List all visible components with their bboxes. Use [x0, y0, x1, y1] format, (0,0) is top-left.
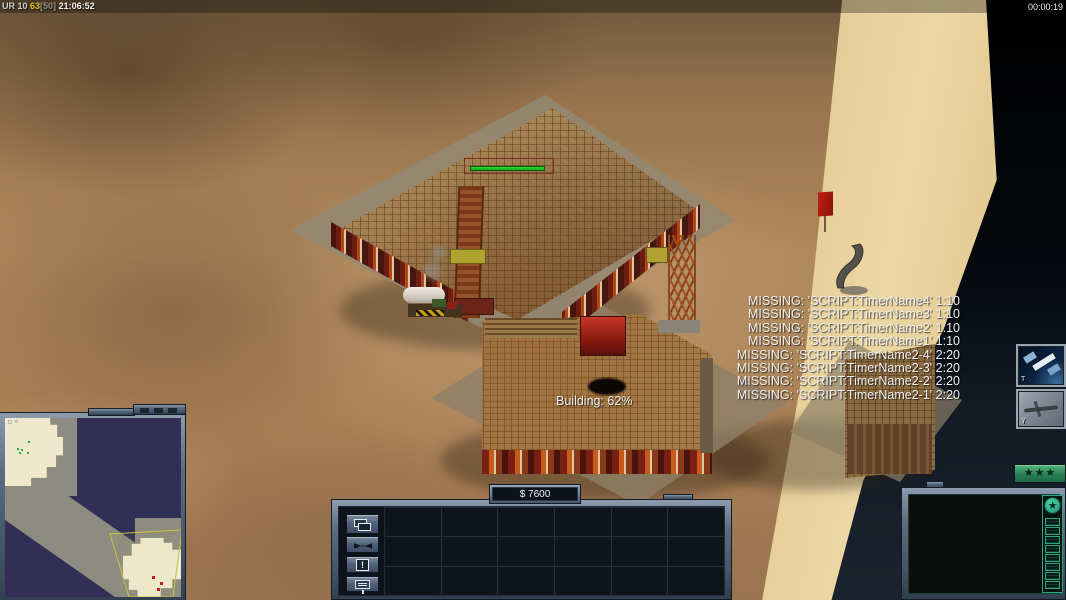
red-machinery	[580, 316, 626, 356]
fps-label: UR 10	[2, 1, 28, 11]
money-value: $ 7600	[492, 487, 578, 501]
yellow-crate	[646, 247, 668, 263]
smoke-puff	[432, 246, 446, 260]
command-slot	[612, 567, 668, 595]
command-slot	[442, 508, 498, 536]
game-viewport[interactable]: UR 10 63[50] 21:06:52 00:00:19 MISSING: …	[0, 0, 1066, 600]
script-message: MISSING: 'SCRIPT:TimerName4' 1:10	[690, 295, 960, 308]
hotkey-label: T	[1021, 376, 1025, 383]
veterancy-segment	[1045, 527, 1060, 535]
command-slot	[498, 508, 554, 536]
menu-button[interactable]	[346, 514, 379, 534]
satellite-icon	[1047, 363, 1061, 375]
veterancy-segment	[1045, 563, 1060, 571]
script-message: MISSING: 'SCRIPT:TimerName2-2' 2:20	[690, 375, 960, 388]
partial-structure-front	[848, 424, 932, 474]
veterancy-segment	[1045, 518, 1060, 526]
minimap-frame-step	[88, 408, 135, 416]
fps-cap: [50]	[40, 1, 56, 11]
scaffold-planks	[485, 318, 577, 338]
hotkey-label: Y	[1021, 418, 1026, 425]
beacon-button[interactable]	[346, 576, 379, 592]
minimap[interactable]	[5, 418, 181, 597]
hazard-stripe	[416, 310, 444, 316]
tab-slot	[140, 408, 149, 413]
script-message: MISSING: 'SCRIPT:TimerName3' 1:10	[690, 308, 960, 321]
rank-star-emblem-icon: ★	[1044, 497, 1061, 514]
command-slot	[442, 567, 498, 595]
command-button-grid	[384, 507, 725, 596]
red-flag	[818, 191, 833, 216]
debug-stats: UR 10 63[50] 21:06:52	[2, 1, 95, 11]
debug-clock: 21:06:52	[59, 1, 95, 11]
tab-slot	[154, 408, 163, 413]
truck-green-detail	[432, 299, 446, 307]
objectives-button[interactable]: !	[346, 556, 379, 573]
script-message-log: MISSING: 'SCRIPT:TimerName4' 1:10 MISSIN…	[690, 295, 960, 402]
smoke-puff	[424, 262, 442, 280]
command-slot	[668, 508, 724, 536]
beacon-icon	[355, 580, 370, 589]
building-progress-label: Building: 62%	[556, 394, 632, 408]
general-rank-stars: ★★★	[1014, 464, 1066, 483]
command-slot	[385, 567, 441, 595]
comms-icon	[354, 542, 372, 550]
script-message: MISSING: 'SCRIPT:TimerName2-1' 2:20	[690, 389, 960, 402]
veterancy-segment	[1045, 572, 1060, 580]
veterancy-strip: ★	[1042, 495, 1063, 593]
windows-icon	[358, 523, 371, 531]
command-slot	[555, 508, 611, 536]
command-slot	[555, 537, 611, 565]
command-slot	[612, 537, 668, 565]
veterancy-segment	[1045, 554, 1060, 562]
aircraft-icon	[1024, 405, 1058, 413]
command-slot	[442, 537, 498, 565]
cobra-statue	[830, 240, 870, 295]
veterancy-segment	[1045, 536, 1060, 544]
command-slot	[668, 537, 724, 565]
fps-value: 63	[30, 1, 40, 11]
unit-portrait-area	[908, 494, 1060, 594]
satellite-icon	[1023, 351, 1037, 363]
command-slot	[668, 567, 724, 595]
construction-pit	[588, 378, 626, 395]
script-message: MISSING: 'SCRIPT:TimerName2-4' 2:20	[690, 349, 960, 362]
tab-slot	[168, 408, 177, 413]
exclamation-icon: !	[356, 559, 369, 571]
command-slot	[498, 567, 554, 595]
minimap-frame-tab	[133, 404, 186, 415]
top-hud-strip	[0, 0, 1066, 13]
command-slot	[612, 508, 668, 536]
comms-button[interactable]	[346, 536, 379, 553]
money-display-frame: $ 7600	[489, 484, 581, 504]
command-slot	[555, 567, 611, 595]
script-message: MISSING: 'SCRIPT:TimerName1' 1:10	[690, 335, 960, 348]
veterancy-segment	[1045, 581, 1060, 589]
crane-collar	[450, 249, 486, 264]
script-message: MISSING: 'SCRIPT:TimerName2' 1:10	[690, 322, 960, 335]
command-slot	[385, 537, 441, 565]
health-bar-fill	[470, 166, 545, 171]
command-slot	[385, 508, 441, 536]
poster-wall-front	[482, 450, 712, 474]
mission-timer: 00:00:19	[1028, 2, 1063, 12]
command-slot	[498, 537, 554, 565]
camera-frustum	[5, 418, 181, 597]
veterancy-segment	[1045, 545, 1060, 553]
satellite-scan-button[interactable]: T	[1016, 344, 1066, 387]
aircraft-ability-button[interactable]: Y	[1016, 389, 1066, 429]
truck-red-detail	[447, 302, 457, 309]
script-message: MISSING: 'SCRIPT:TimerName2-3' 2:20	[690, 362, 960, 375]
